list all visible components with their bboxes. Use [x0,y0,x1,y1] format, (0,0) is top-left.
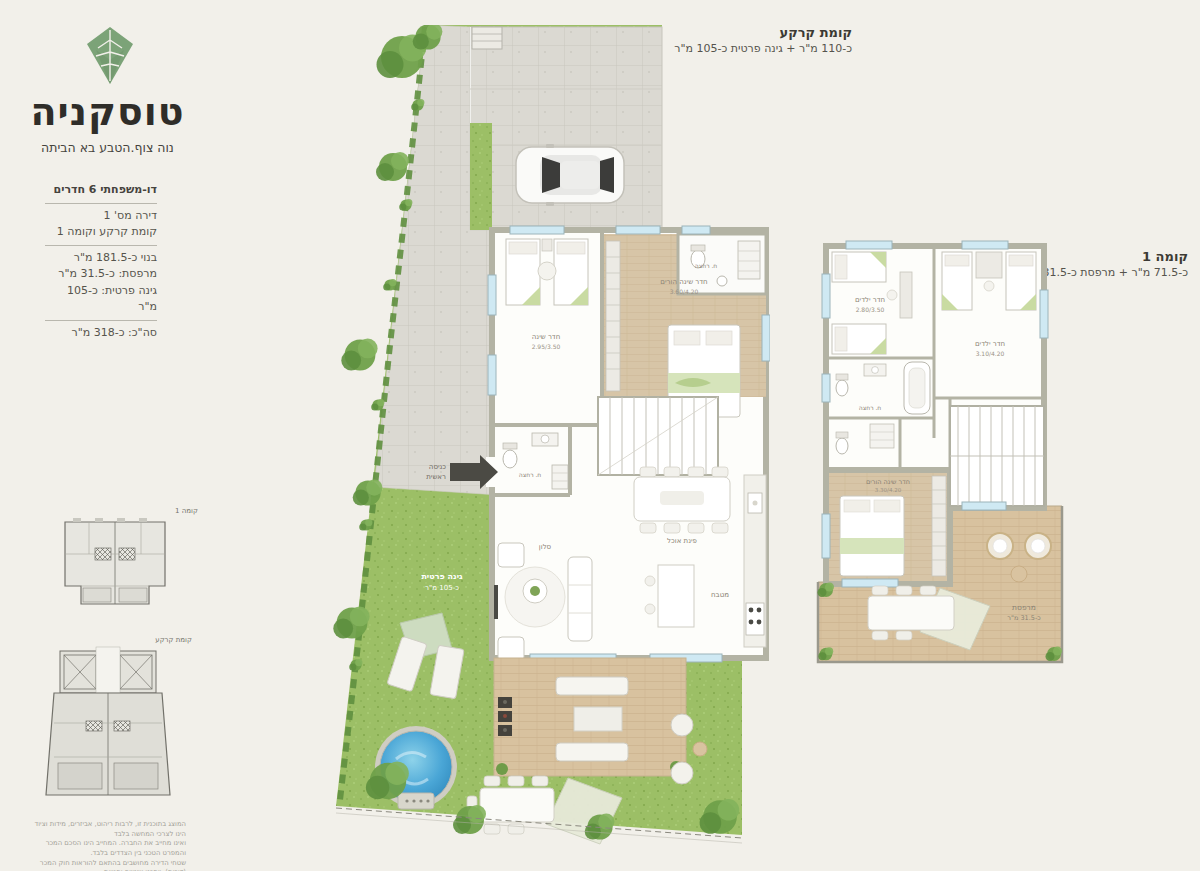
spec-floors: קומת קרקע וקומה 1 [45,224,157,241]
keyplan-ground [38,645,178,803]
staircase [598,397,718,475]
bedroom-dims: 2.95/3.50 [532,343,561,350]
master-bedroom-label: חדר שינה הורים [660,278,707,286]
spec-built: בנוי כ-181.5 מ"ר [45,250,157,267]
master-f1-dims: 3.30/4.20 [875,487,902,493]
garden-deck [494,658,686,776]
unit-specs: דו-משפחתי 6 חדרים דירה מס' 1 קומת קרקע ו… [45,182,157,341]
spec-divider [45,245,157,246]
bedroom-label: חדר שינה [532,333,560,341]
spec-type: דו-משפחתי 6 חדרים [45,182,157,199]
keyplan-ground-label: קומת קרקע [110,636,192,644]
outdoor-sofa [556,677,628,695]
first-floor-plan: חדר ילדים 2.80/3.50 חדר ילדים 3.10/4.20 … [812,238,1100,670]
terrace-label-2: כ-31.5 מ"ר [1007,614,1041,622]
garden-area-label-2: כ-105 מ"ר [425,584,459,592]
garden-table [480,788,554,822]
dining-label: פינת אוכל [667,537,697,545]
entrance-label-1: כניסה [429,463,446,471]
armchair [498,543,524,567]
entry-steps [472,27,502,49]
tv-unit [494,585,498,619]
bathroom-mid-label: ח. רחצה [519,471,542,478]
brand-title: טוסקניה [10,90,205,134]
terrace-table [868,596,954,630]
spec-garden: גינה פרטית: כ-105 מ"ר [45,283,157,316]
spec-total: סה"כ: כ-318 מ"ר [45,325,157,342]
disclaimer-line: המוצג בתוכנית זו, לרבות ריהוט, אביזרים, … [28,820,186,839]
kids-room-b-label: חדר ילדים [975,340,1005,348]
disclaimer-line: שטחי הדירה מחושבים בהתאם להוראות חוק המכ… [28,859,186,871]
brand-subtitle: נוה צוף.הטבע בא הביתה [10,140,205,155]
disclaimer-line: ואינו מחייב את החברה. המחייב הינו הסכם ה… [28,839,186,858]
master-f1-label: חדר שינה הורים [866,478,910,486]
spec-divider [45,203,157,204]
keyplan-floor1 [55,502,175,614]
living-label: סלון [539,543,552,551]
stove [746,603,764,635]
entrance-label-2: ראשית [426,473,446,481]
coffee-table [574,707,622,731]
keyplan-floor1-label: קומה 1 [128,507,198,515]
bathroom-top-label: ח. רחצה [695,262,718,269]
brand-logo-leaf-icon [86,26,134,86]
spec-unit: דירה מס' 1 [45,208,157,225]
kitchen-island [658,565,694,627]
ground-floor-plan: ח. רחצה חדר שינה 2.95/3.50 [330,25,770,857]
kitchen-label: מטבח [711,591,729,599]
armchair [498,637,524,661]
kids-room-a-dims: 2.80/3.50 [856,306,885,313]
staircase-f1 [950,406,1044,506]
parked-car [516,144,624,206]
master-bedroom-dims: 3.60/4.20 [670,288,699,295]
spec-balcony: מרפסת: כ-31.5 מ"ר [45,266,157,283]
kids-room-a-label: חדר ילדים [855,296,885,304]
brochure-page: טוסקניה נוה צוף.הטבע בא הביתה דו-משפחתי … [0,0,1200,871]
garden-area-label-1: גינה פרטית [421,572,463,581]
legal-disclaimer: המוצג בתוכנית זו, לרבות ריהוט, אביזרים, … [28,820,186,871]
sofa [568,557,592,641]
terrace-label-1: מרפסת [1012,603,1036,612]
bathroom-f1-label: ח. רחצה [859,404,882,411]
kids-room-b-dims: 3.10/4.20 [976,350,1005,357]
outdoor-sofa [556,743,628,761]
spec-divider [45,320,157,321]
wardrobe [606,241,620,391]
